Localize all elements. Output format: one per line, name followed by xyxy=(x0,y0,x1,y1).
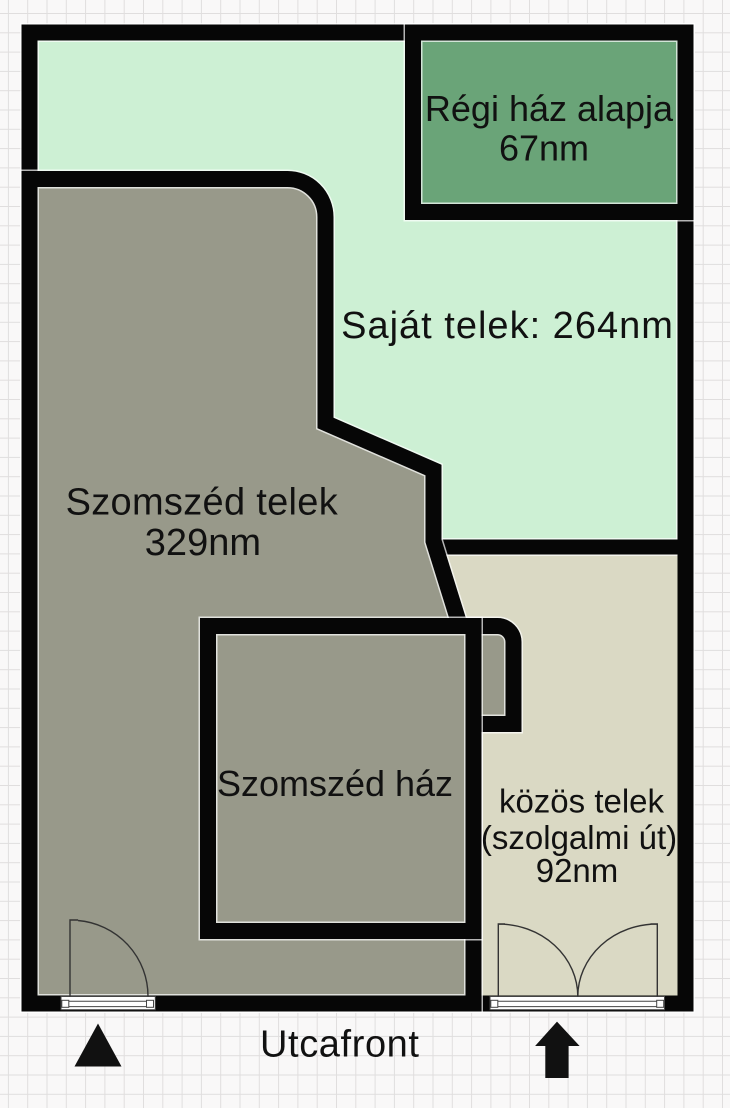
svg-text:Szomszéd telek: Szomszéd telek xyxy=(66,482,339,524)
svg-text:92nm: 92nm xyxy=(536,852,619,889)
svg-text:(szolgalmi út): (szolgalmi út) xyxy=(481,819,677,856)
svg-text:Utcafront: Utcafront xyxy=(260,1024,420,1066)
svg-text:Saját telek: 264nm: Saját telek: 264nm xyxy=(341,305,674,347)
svg-text:Szomszéd ház: Szomszéd ház xyxy=(217,763,453,804)
svg-text:közös telek: közös telek xyxy=(499,783,665,820)
svg-text:67nm: 67nm xyxy=(499,128,589,169)
svg-text:Régi ház alapja: Régi ház alapja xyxy=(425,88,674,129)
svg-text:329nm: 329nm xyxy=(145,522,261,564)
